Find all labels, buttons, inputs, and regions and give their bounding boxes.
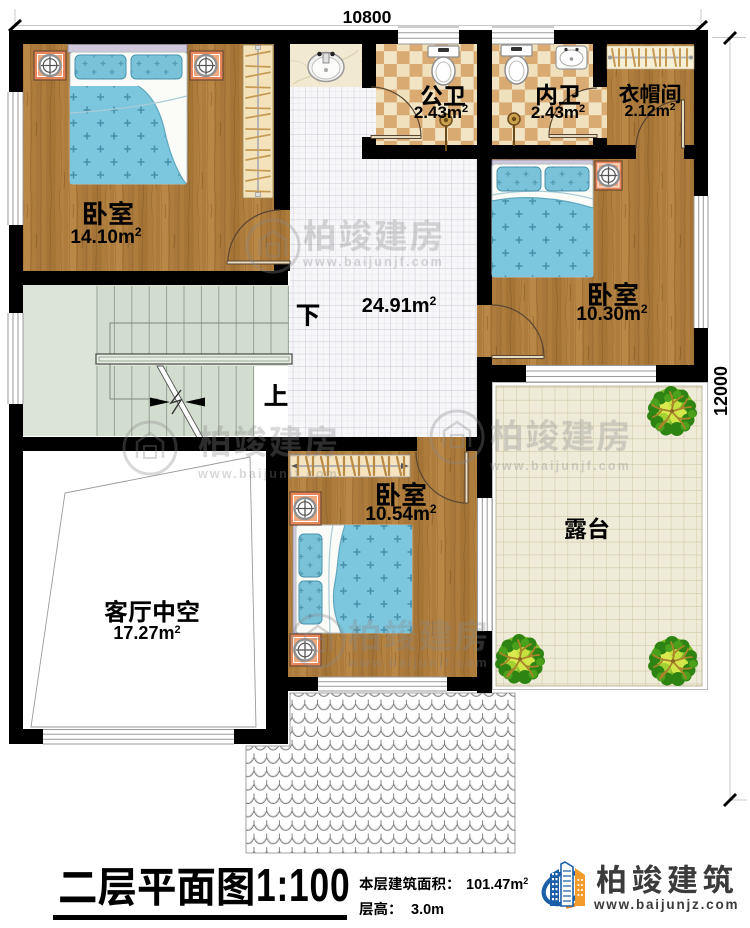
svg-text:2.43m2: 2.43m2: [531, 103, 585, 122]
svg-text:10.54m2: 10.54m2: [365, 502, 436, 525]
svg-text:www.baijunjf.com: www.baijunjf.com: [489, 459, 631, 473]
svg-text:2.12m2: 2.12m2: [625, 102, 676, 120]
svg-text:www.baijunjf.com: www.baijunjf.com: [347, 656, 489, 670]
svg-text:12000: 12000: [711, 366, 731, 416]
svg-text:www.baijunjz.com: www.baijunjz.com: [593, 897, 739, 912]
svg-text:14.10m2: 14.10m2: [70, 225, 141, 248]
svg-text:www.baijunjf.com: www.baijunjf.com: [197, 467, 339, 481]
svg-text:2.43m2: 2.43m2: [414, 103, 468, 122]
svg-text:24.91m2: 24.91m2: [362, 294, 437, 317]
svg-text:17.27m2: 17.27m2: [113, 623, 180, 643]
svg-text:101.47m2: 101.47m2: [466, 876, 528, 893]
svg-text:10800: 10800: [343, 7, 392, 27]
svg-text:10.30m2: 10.30m2: [576, 302, 647, 325]
svg-text:www.baijunjf.com: www.baijunjf.com: [302, 255, 444, 269]
svg-text:1:100: 1:100: [256, 860, 350, 912]
svg-text:3.0m: 3.0m: [411, 902, 444, 918]
